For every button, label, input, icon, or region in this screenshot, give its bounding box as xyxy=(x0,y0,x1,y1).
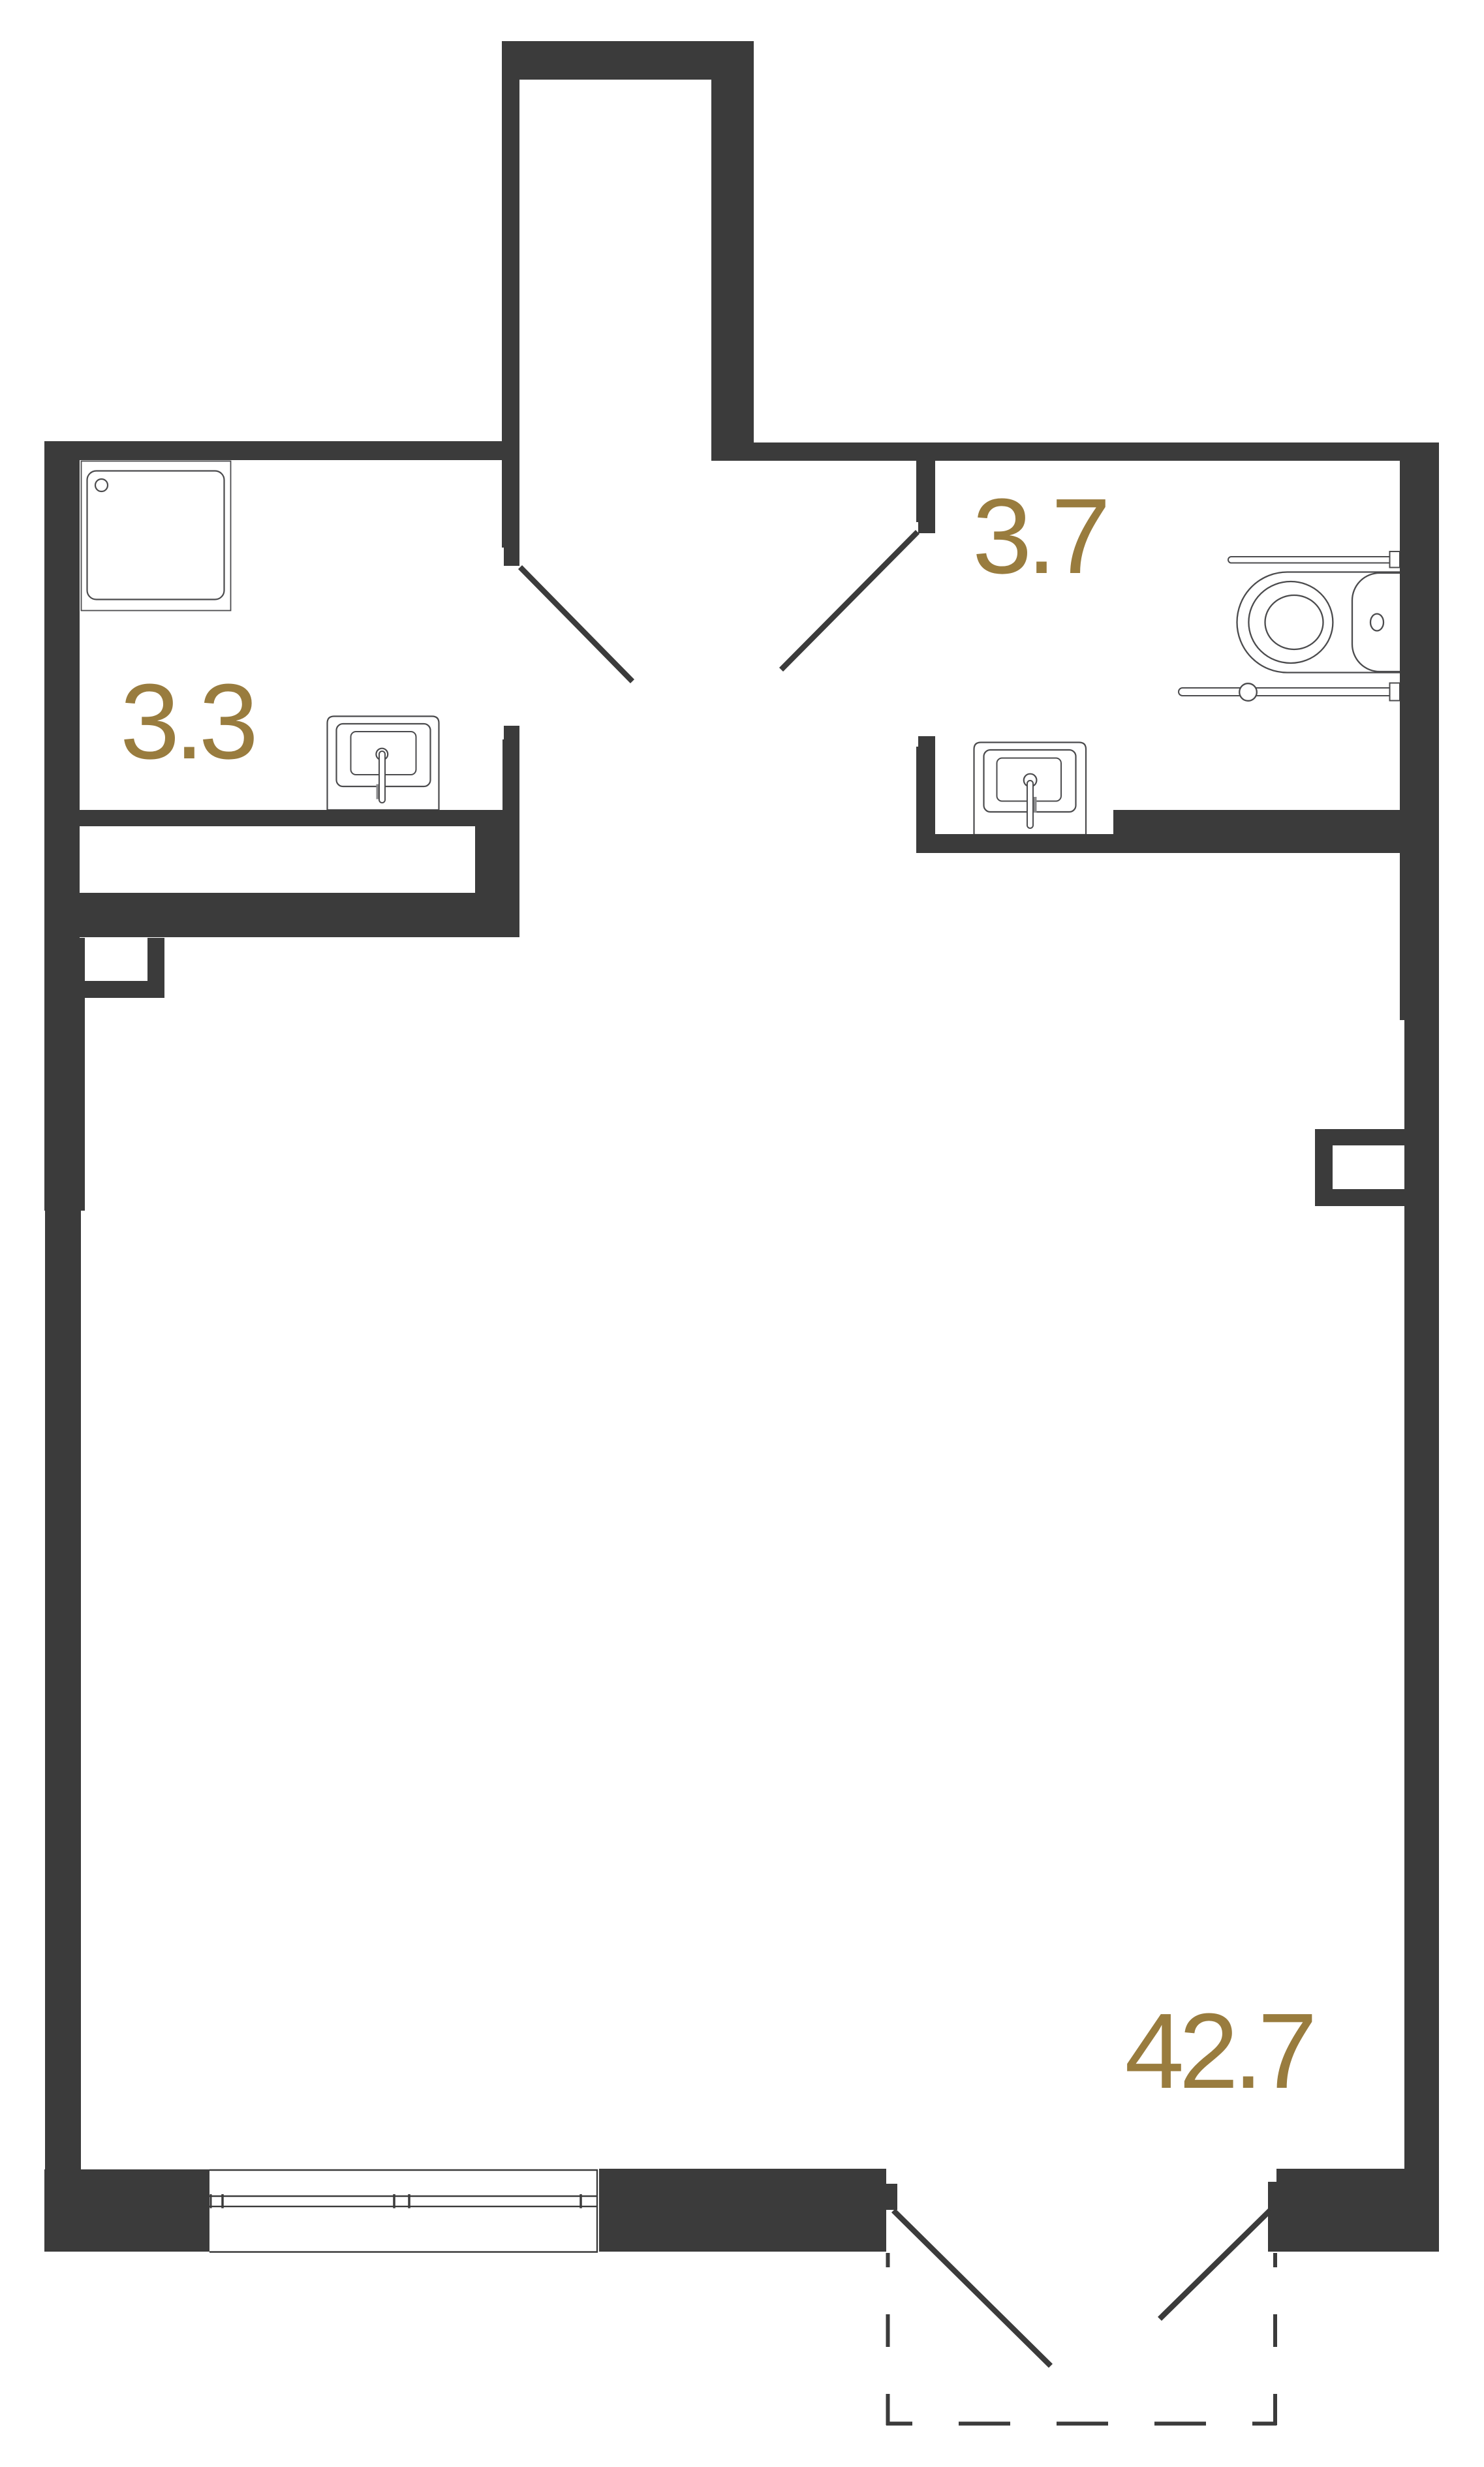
svg-text:42.7: 42.7 xyxy=(1124,1991,1312,2111)
svg-text:3.7: 3.7 xyxy=(972,476,1105,596)
svg-text:3.3: 3.3 xyxy=(120,662,254,781)
